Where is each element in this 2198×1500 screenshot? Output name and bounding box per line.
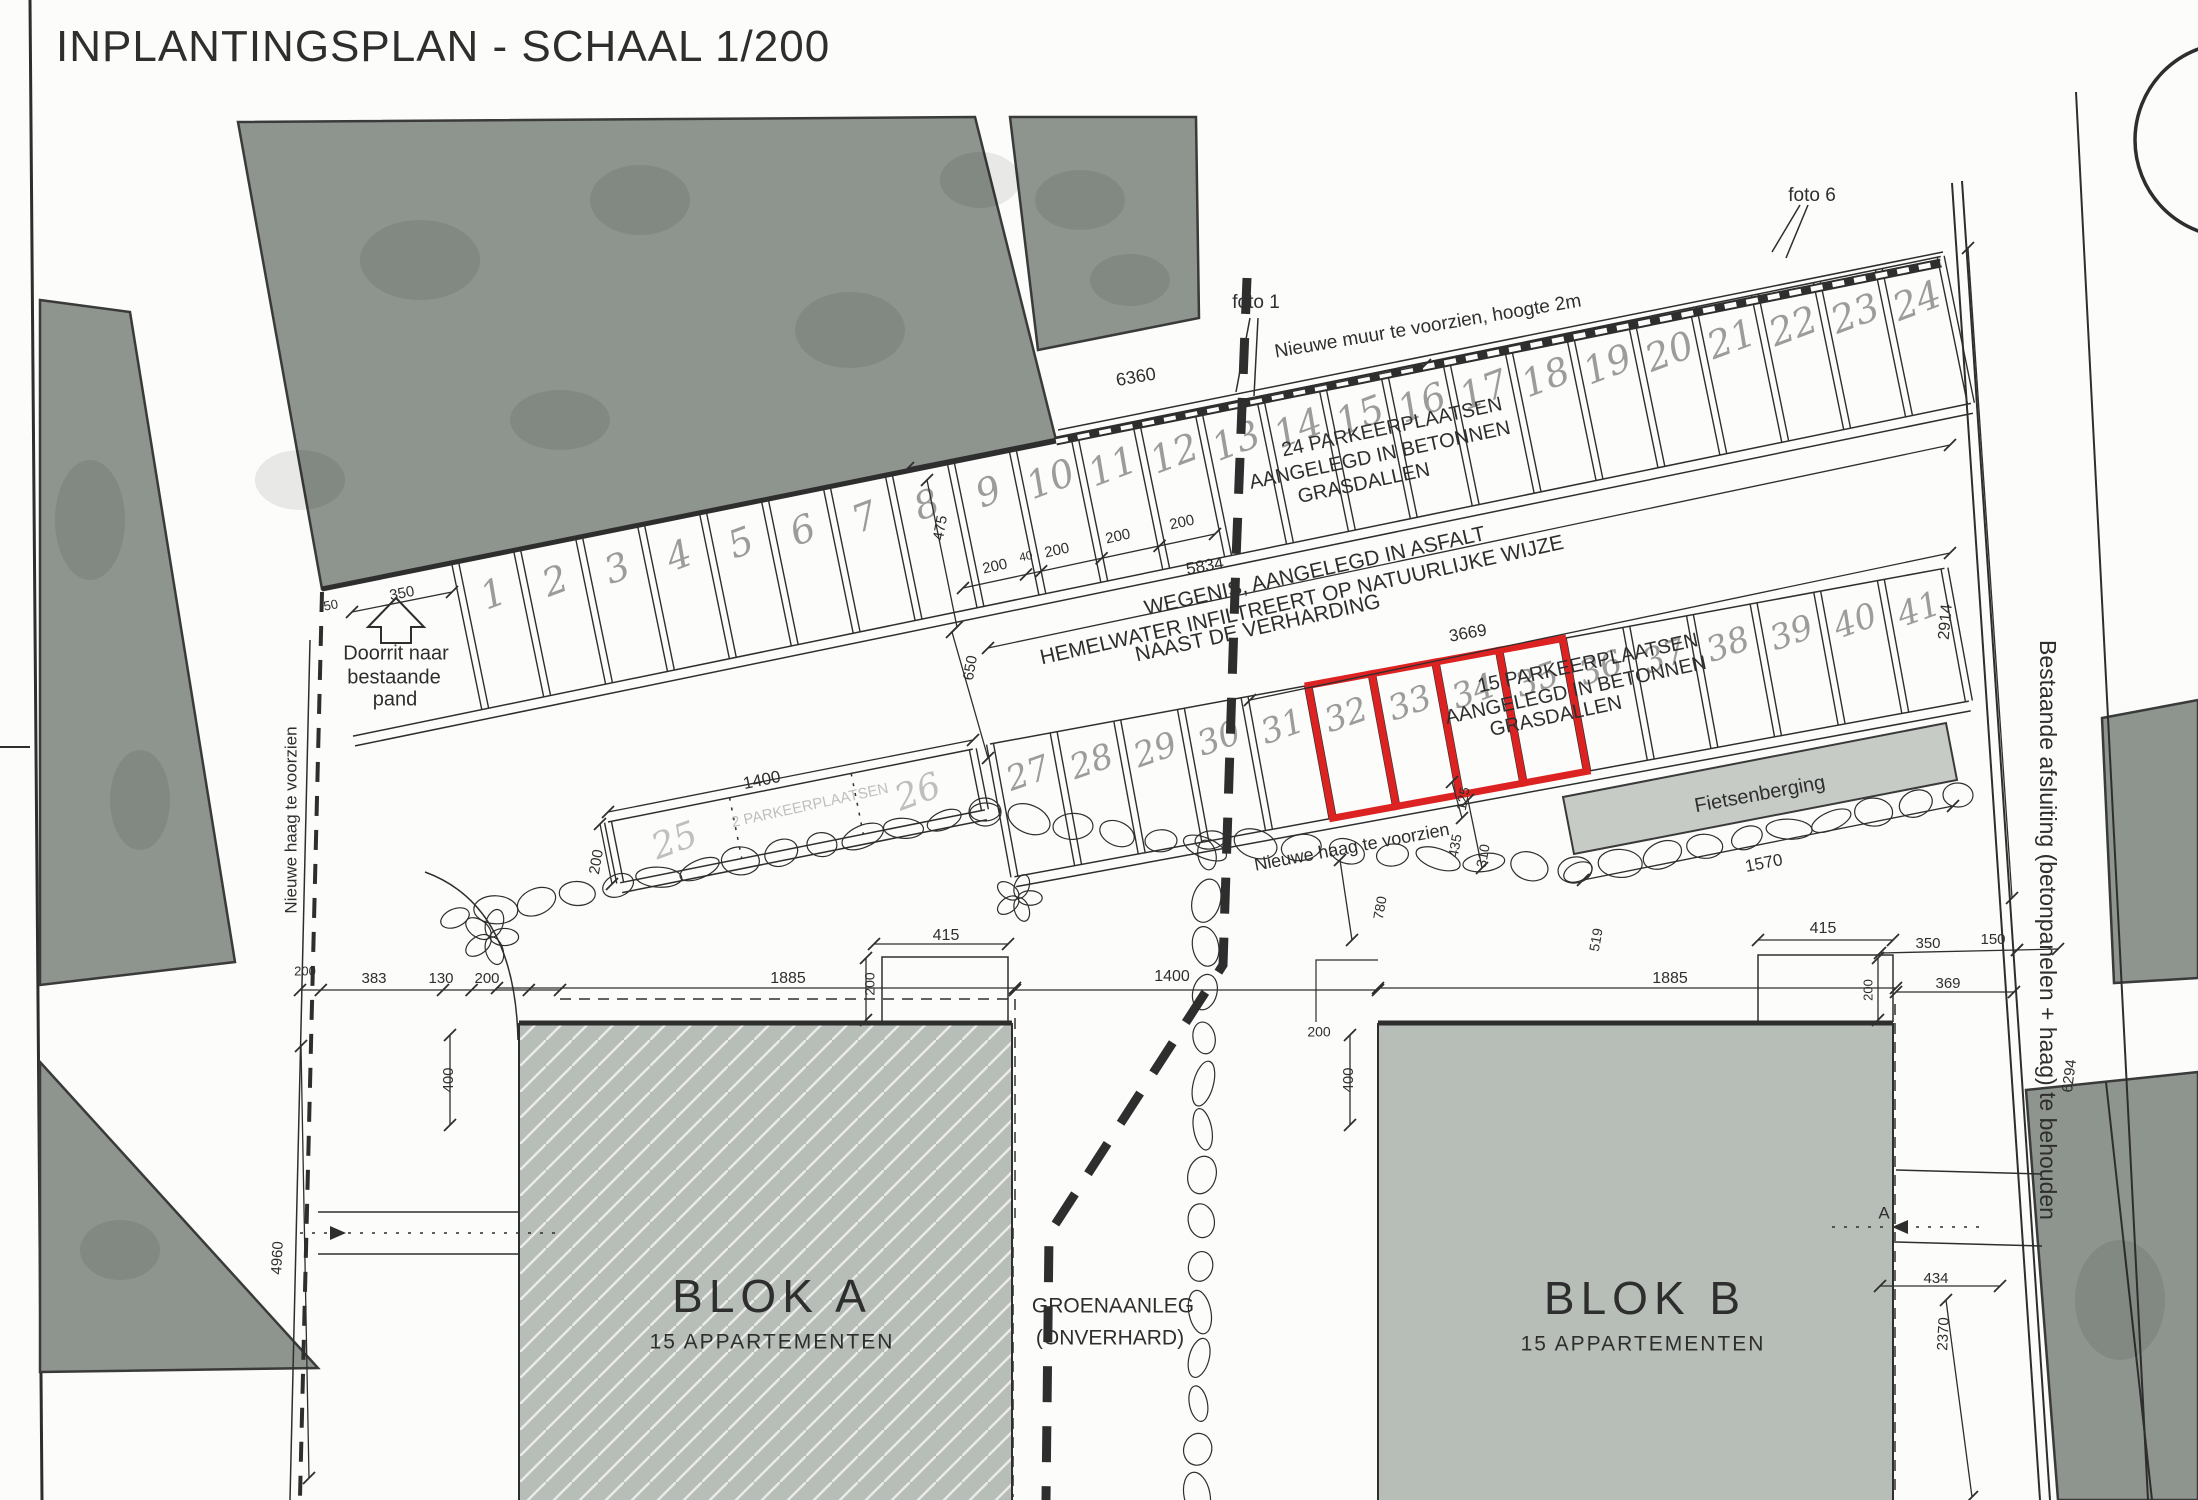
- hedge-blob: [1188, 1059, 1219, 1109]
- dimension-tick: [602, 806, 614, 818]
- parking-space-number: 9: [969, 467, 1007, 517]
- hedge-blob: [513, 882, 560, 922]
- parking-space-number: 7: [846, 492, 885, 542]
- annotation-dim-400-b: 400: [1340, 1067, 1357, 1092]
- texture-smudge: [1035, 170, 1125, 230]
- existing-building-shape: [40, 300, 235, 985]
- texture-smudge: [255, 450, 345, 510]
- parking-space-number: 21: [1700, 310, 1762, 369]
- dimension-tick: [1154, 540, 1166, 552]
- annotation-dim-475: 475: [930, 514, 951, 542]
- annotation-doorrit-line3: pand: [373, 688, 418, 710]
- annotation-dim-383: 383: [361, 970, 386, 987]
- hedge-blob: [1003, 798, 1054, 841]
- annotation-dim-415-a: 415: [933, 927, 960, 944]
- parking-space-number: 10: [1020, 450, 1081, 508]
- parking-divider: [976, 748, 988, 809]
- blok-a-entrance-bump: [882, 957, 1008, 1022]
- dimension-tick: [967, 734, 979, 746]
- hedge-blob: [1189, 924, 1222, 968]
- annotation-dim-130: 130: [428, 970, 453, 987]
- hedge-blob: [1187, 876, 1225, 926]
- annotation-dim-1400-mid: 1400: [1154, 968, 1190, 985]
- hedge-blob: [1184, 1336, 1214, 1380]
- hedge-blob: [1186, 1384, 1211, 1423]
- hedge-blob: [599, 869, 637, 902]
- annotation-foto-1: foto 1: [1232, 292, 1280, 313]
- parking-divider: [1937, 257, 1967, 404]
- texture-smudge: [510, 390, 610, 450]
- parking-space-number: 40: [1827, 595, 1882, 647]
- annotation-dim-200-a: 200: [981, 556, 1009, 578]
- site-plan-page: INPLANTINGSPLAN - SCHAAL 1/200 123456789…: [0, 0, 2198, 1500]
- annotation-dim-1570: 1570: [1743, 850, 1784, 876]
- annotation-dim-200-415a: 200: [862, 972, 878, 996]
- hedge-blob: [838, 818, 887, 856]
- texture-smudge: [80, 1220, 160, 1280]
- foto1-leader: [1254, 318, 1258, 396]
- annotation-dim-5834: 5834: [1185, 553, 1226, 578]
- dimension-tick: [346, 606, 358, 618]
- parking-space-number: 32: [1319, 689, 1373, 741]
- annotation-dim-1885-a: 1885: [770, 970, 806, 987]
- annotation-section-a: A: [1878, 1203, 1890, 1222]
- parking-space-number: 1: [474, 569, 512, 619]
- dimension-tick: [1035, 565, 1047, 577]
- annotation-blok-a-sub: 15 APPARTEMENTEN: [650, 1331, 895, 1354]
- driveway-line: [1896, 1242, 2042, 1246]
- annotation-dim-434-r: 434: [1923, 1270, 1948, 1287]
- annotation-dim-435: 435: [1445, 833, 1465, 859]
- annotation-dim-6360: 6360: [1114, 363, 1157, 390]
- parking-space-number: 28: [1064, 736, 1119, 788]
- annotation-dim-2914: 2914: [1936, 603, 1956, 640]
- annotation-doorrit-line1: Doorrit naar: [343, 642, 449, 664]
- hedge-blob: [1180, 1470, 1214, 1500]
- annotation-dim-200-c: 200: [1104, 526, 1132, 548]
- texture-smudge: [590, 165, 690, 235]
- section-arrow-left: [330, 1226, 346, 1240]
- dimension-tick: [1944, 439, 1956, 451]
- parking-space-number: 30: [1192, 712, 1246, 764]
- parking-space-number: 38: [1701, 619, 1755, 671]
- dimension-tick: [1456, 812, 1468, 824]
- annotation-blok-b: BLOK B: [1544, 1272, 1746, 1324]
- texture-smudge: [55, 460, 125, 580]
- annotation-dim-4960: 4960: [268, 1241, 287, 1275]
- annotation-dim-2370: 2370: [1934, 1317, 1953, 1351]
- hedge-blob: [1766, 818, 1813, 840]
- annotation-dim-310: 310: [1473, 843, 1493, 869]
- parking-space-number: 11: [1082, 437, 1143, 495]
- annotation-groen-line2: (ONVERHARD): [1036, 1327, 1184, 1350]
- annotation-dim-40: 40: [1018, 548, 1034, 565]
- annotation-dim-780: 780: [1370, 895, 1390, 921]
- site-plan-canvas: 1234567891011121314151617181920212223242…: [0, 0, 2198, 1500]
- annotation-blok-b-sub: 15 APPARTEMENTEN: [1521, 1333, 1766, 1356]
- parking-space-number: 6: [784, 505, 822, 555]
- foto6-leader: [1786, 205, 1808, 258]
- doorrit-arrow-icon: [368, 598, 424, 643]
- parking-space-number: 24: [1886, 272, 1948, 331]
- hedge-blob: [1180, 830, 1230, 867]
- parking-space-number: 23: [1824, 284, 1886, 343]
- annotation-dim-200-l: 200: [294, 963, 316, 978]
- annotation-afsluiting-rechts: Bestaande afsluiting (betonpanelen + haa…: [2035, 640, 2061, 1220]
- hedge-blob: [1144, 829, 1177, 852]
- parking-space-number: 5: [722, 518, 760, 568]
- annotation-dim-400-a: 400: [440, 1067, 457, 1092]
- annotation-dim-369-r: 369: [1935, 975, 1960, 992]
- hedge-blob: [1556, 855, 1593, 885]
- parking-space-number: 25: [645, 814, 703, 869]
- annotation-haag-links: Nieuwe haag te voorzien: [281, 726, 300, 913]
- dimension-tick: [946, 626, 958, 638]
- texture-smudge: [1090, 254, 1170, 306]
- annotation-dim-1885-b: 1885: [1652, 970, 1688, 987]
- hedge-blob: [1184, 1153, 1221, 1197]
- right-boundary-line-1: [1952, 183, 2040, 1500]
- annotation-doorrit-line2: bestaande: [347, 666, 440, 688]
- dimension-tick: [1020, 569, 1032, 581]
- texture-smudge: [360, 220, 480, 300]
- hedge-blob: [1190, 1020, 1218, 1056]
- foto6-leader: [1772, 205, 1800, 252]
- parking-space-number: 39: [1765, 607, 1819, 659]
- hedge-blob: [1808, 804, 1854, 837]
- hedge-blob: [1190, 1107, 1216, 1152]
- parking-space-number: 22: [1762, 297, 1824, 356]
- parking-space-number: 20: [1638, 323, 1700, 382]
- annotation-dim-200-b-left: 200: [1307, 1024, 1331, 1040]
- parking-space-number: 29: [1127, 724, 1182, 776]
- hedge-blob: [1598, 848, 1643, 878]
- annotation-foto-6: foto 6: [1788, 185, 1836, 206]
- parking-space-number: 2: [535, 556, 574, 606]
- annotation-blok-a: BLOK A: [672, 1270, 872, 1322]
- annotation-groen-line1: GROENAANLEG: [1032, 1295, 1194, 1318]
- parking-space-number: 18: [1515, 348, 1576, 406]
- driveway-line: [1896, 1170, 2042, 1174]
- annotation-dim-3669: 3669: [1448, 620, 1489, 645]
- texture-smudge: [2075, 1240, 2165, 1360]
- annotation-dim-519: 519: [1586, 927, 1606, 953]
- annotation-nieuwe-muur: Nieuwe muur te voorzien, hoogte 2m: [1273, 291, 1583, 363]
- dimension-line: [1340, 860, 1352, 940]
- hedge-blob: [1507, 847, 1552, 886]
- texture-smudge: [795, 292, 905, 368]
- blok-b-step-line: [1316, 960, 1378, 1022]
- corner-arc: [2135, 43, 2198, 237]
- annotation-dim-350-doorrit: 350: [388, 583, 416, 604]
- existing-building-shape: [40, 1062, 318, 1372]
- existing-building-shape: [1010, 117, 1199, 350]
- annotation-dim-350-r: 350: [1915, 935, 1940, 952]
- hedge-blob: [559, 881, 596, 907]
- parking-space-number: 33: [1383, 677, 1437, 729]
- dimension-line: [927, 480, 957, 627]
- blok-b-shape: [1378, 1022, 1893, 1500]
- hedge-blob: [1185, 1202, 1217, 1240]
- parking-space-number: 27: [1000, 747, 1055, 800]
- dimension-line: [1968, 248, 2012, 898]
- parking-space-number: 26: [888, 765, 946, 820]
- dimension-tick: [1944, 547, 1956, 559]
- existing-building-shape: [2102, 700, 2198, 983]
- texture-smudge: [110, 750, 170, 850]
- texture-smudge: [940, 152, 1020, 208]
- dimension-line: [952, 632, 988, 758]
- dimension-tick: [957, 582, 969, 594]
- annotation-dim-200-haag: 200: [586, 848, 607, 876]
- dimension-tick: [1209, 528, 1221, 540]
- annotation-dim-200-d: 200: [1168, 512, 1196, 534]
- parking-divider: [969, 750, 981, 811]
- parking-space-number: 19: [1577, 335, 1638, 393]
- annotation-dim-150-r: 150: [1980, 931, 2005, 948]
- blok-a-hatch: [519, 1022, 1012, 1500]
- hedge-blob: [1185, 1249, 1216, 1284]
- annotation-dim-200-b-bump: 200: [1860, 979, 1875, 1001]
- dimension-line: [1880, 950, 2017, 953]
- annotation-dim-200-l2: 200: [474, 970, 499, 987]
- annotation-dim-200-b: 200: [1043, 540, 1071, 562]
- dimension-tick: [982, 642, 994, 654]
- annotation-dim-650: 650: [960, 654, 981, 682]
- parking-space-number: 3: [598, 543, 636, 593]
- parking-space-number: 31: [1255, 701, 1309, 753]
- parking-space-number: 4: [659, 530, 698, 580]
- annotation-dim-50: 50: [322, 596, 339, 613]
- parking-space-number: 12: [1144, 424, 1205, 482]
- dimension-tick: [446, 586, 458, 598]
- hedge-blob: [1180, 1430, 1215, 1468]
- annotation-dim-415-b: 415: [1810, 920, 1837, 937]
- hedge-blob: [1942, 782, 1973, 807]
